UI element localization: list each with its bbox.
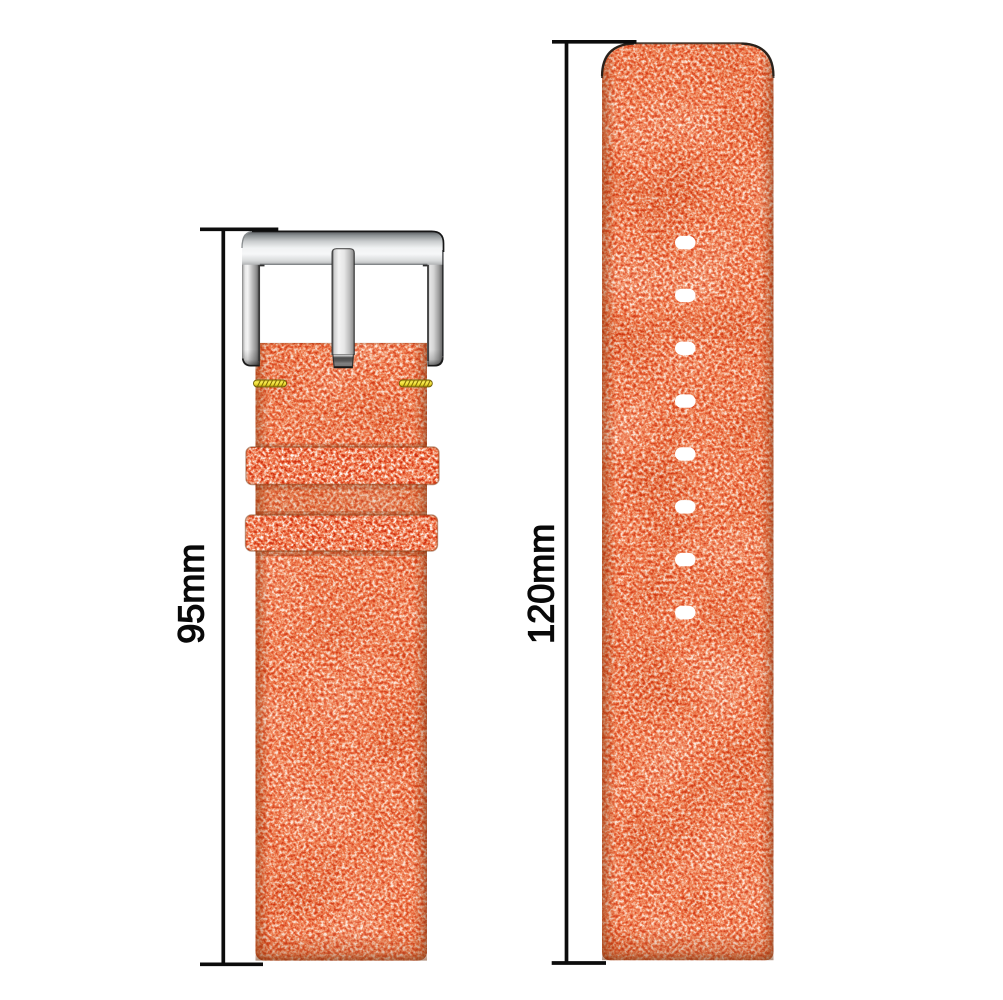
svg-text:95mm: 95mm xyxy=(171,544,212,644)
svg-text:120mm: 120mm xyxy=(521,524,562,644)
